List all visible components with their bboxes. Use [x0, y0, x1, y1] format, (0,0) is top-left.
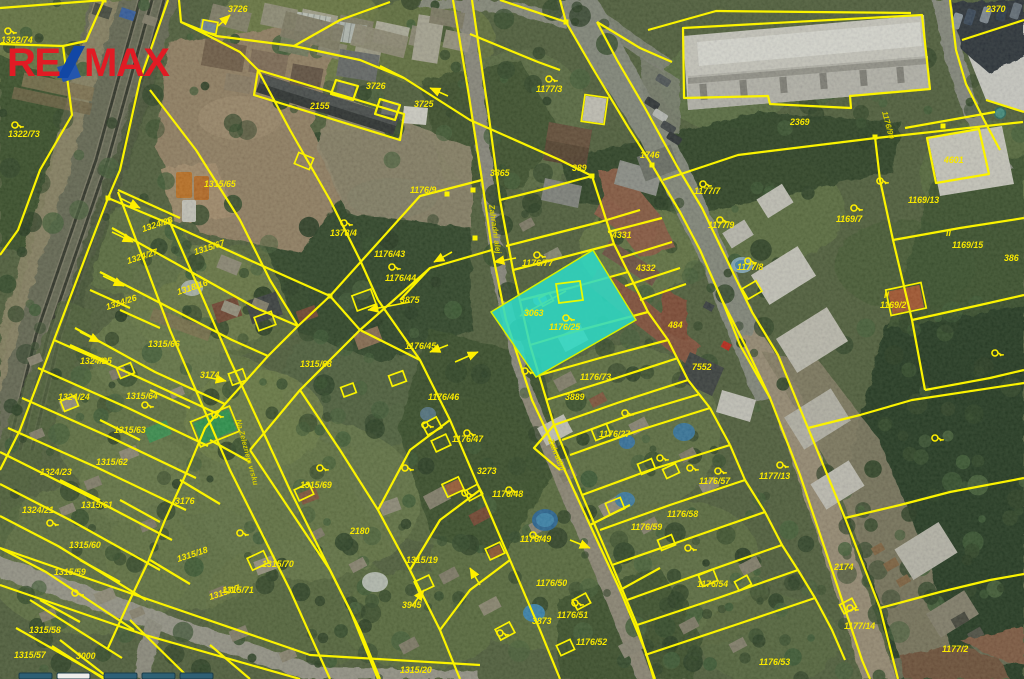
svg-text:1315/58: 1315/58 — [29, 625, 61, 635]
svg-text:4331: 4331 — [611, 230, 632, 240]
svg-text:1315/68: 1315/68 — [300, 359, 332, 369]
svg-text:1176/54: 1176/54 — [697, 579, 728, 589]
svg-text:1746: 1746 — [640, 150, 660, 160]
svg-text:3000: 3000 — [76, 651, 96, 661]
svg-text:1176/59: 1176/59 — [631, 522, 662, 532]
svg-text:389: 389 — [572, 163, 587, 173]
svg-text:1315/65: 1315/65 — [204, 179, 236, 189]
svg-text:2180: 2180 — [349, 526, 370, 536]
svg-text:3174: 3174 — [200, 370, 220, 380]
svg-text:3725: 3725 — [414, 99, 434, 109]
svg-text:RE: RE — [7, 41, 60, 85]
svg-text:3176: 3176 — [175, 496, 195, 506]
svg-text:1169/13: 1169/13 — [908, 195, 939, 205]
svg-text:4601: 4601 — [943, 155, 964, 165]
svg-text:3945: 3945 — [402, 600, 422, 610]
svg-text:1176/51: 1176/51 — [557, 610, 588, 620]
svg-text:1315/63: 1315/63 — [114, 425, 146, 435]
svg-text:484: 484 — [667, 320, 683, 330]
svg-text:1169/15: 1169/15 — [952, 240, 983, 250]
svg-text:1176/57: 1176/57 — [699, 476, 731, 486]
svg-text:1315/59: 1315/59 — [54, 567, 86, 577]
svg-text:1176/46: 1176/46 — [428, 392, 459, 402]
svg-text:1324/25: 1324/25 — [80, 356, 112, 366]
svg-text:1176/50: 1176/50 — [536, 578, 567, 588]
svg-text:1378/4: 1378/4 — [330, 228, 357, 238]
svg-text:1315/66: 1315/66 — [148, 339, 180, 349]
svg-text:3875: 3875 — [400, 295, 420, 305]
svg-text:1176/77: 1176/77 — [522, 258, 554, 268]
svg-text:1324/21: 1324/21 — [22, 505, 54, 515]
svg-text:1176/9: 1176/9 — [410, 185, 436, 195]
svg-text:4332: 4332 — [635, 263, 656, 273]
svg-text:II: II — [884, 290, 889, 300]
svg-text:1176/43: 1176/43 — [374, 249, 405, 259]
svg-text:2174: 2174 — [833, 562, 854, 572]
svg-text:3873: 3873 — [532, 616, 552, 626]
svg-text:II: II — [946, 228, 951, 238]
svg-text:3865: 3865 — [490, 168, 510, 178]
svg-text:1177/8: 1177/8 — [737, 262, 763, 272]
svg-text:7552: 7552 — [692, 362, 712, 372]
svg-text:1176/49: 1176/49 — [520, 534, 551, 544]
svg-text:1315/64: 1315/64 — [126, 391, 158, 401]
svg-text:3063: 3063 — [524, 308, 544, 318]
svg-text:1324/23: 1324/23 — [40, 467, 72, 477]
svg-text:1169/7: 1169/7 — [836, 214, 863, 224]
svg-text:1176/53: 1176/53 — [759, 657, 790, 667]
svg-text:3889: 3889 — [565, 392, 585, 402]
svg-text:1177/14: 1177/14 — [844, 621, 875, 631]
svg-text:1322/73: 1322/73 — [8, 129, 40, 139]
svg-text:1315/57: 1315/57 — [14, 650, 47, 660]
svg-text:1324/24: 1324/24 — [58, 392, 90, 402]
svg-text:1176/48: 1176/48 — [492, 489, 523, 499]
svg-text:1315/19: 1315/19 — [406, 555, 438, 565]
svg-text:3726: 3726 — [228, 4, 248, 14]
svg-text:1315/20: 1315/20 — [400, 665, 432, 675]
svg-text:1176/52: 1176/52 — [576, 637, 607, 647]
svg-text:1315/61: 1315/61 — [81, 500, 113, 510]
svg-text:1176/73: 1176/73 — [580, 372, 611, 382]
svg-text:1315/62: 1315/62 — [96, 457, 128, 467]
svg-text:2369: 2369 — [789, 117, 810, 127]
svg-text:MAX: MAX — [84, 41, 170, 85]
svg-text:3726: 3726 — [366, 81, 386, 91]
svg-text:1177/7: 1177/7 — [694, 186, 721, 196]
svg-text:1176/58: 1176/58 — [667, 509, 698, 519]
svg-text:1177/3: 1177/3 — [536, 84, 562, 94]
svg-text:1176/25: 1176/25 — [549, 322, 580, 332]
svg-text:1177/2: 1177/2 — [942, 644, 968, 654]
svg-text:1169/2: 1169/2 — [880, 300, 906, 310]
svg-text:1315/70: 1315/70 — [262, 559, 294, 569]
svg-text:1176/44: 1176/44 — [385, 273, 416, 283]
svg-text:2370: 2370 — [985, 4, 1006, 14]
svg-text:1177/9: 1177/9 — [708, 220, 734, 230]
svg-text:1176/47: 1176/47 — [452, 434, 484, 444]
svg-text:1177/13: 1177/13 — [759, 471, 790, 481]
svg-text:3273: 3273 — [477, 466, 497, 476]
svg-text:1315/60: 1315/60 — [69, 540, 101, 550]
svg-text:2155: 2155 — [309, 101, 330, 111]
svg-text:1176/45: 1176/45 — [405, 341, 436, 351]
svg-text:1315/69: 1315/69 — [300, 480, 332, 490]
svg-text:386: 386 — [1004, 253, 1019, 263]
svg-text:1176/27: 1176/27 — [599, 429, 631, 439]
